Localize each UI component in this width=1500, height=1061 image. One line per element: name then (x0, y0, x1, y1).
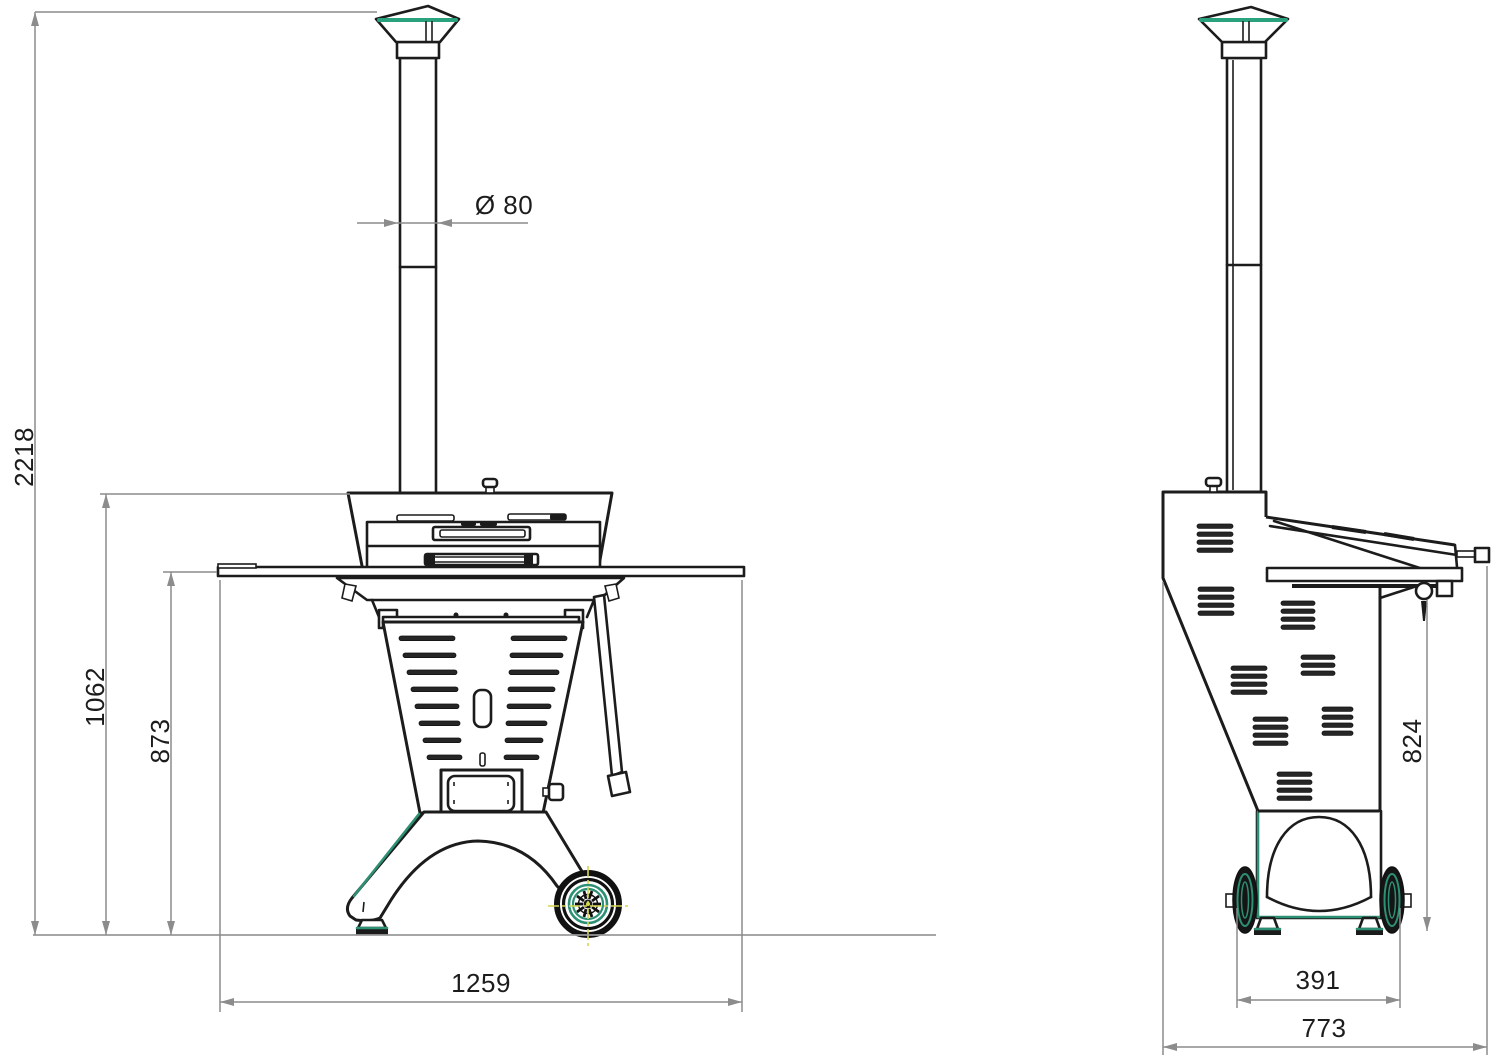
side-bracket (1437, 581, 1452, 596)
front-chimney (376, 6, 459, 503)
side-body (1163, 478, 1489, 811)
front-side-lever (594, 595, 622, 776)
side-view: 824 391 773 (1163, 7, 1489, 1055)
side-wheel-front (1380, 867, 1411, 933)
dim-total-height: 2218 (9, 12, 377, 935)
dim-worktop-height: 873 (145, 572, 217, 935)
side-flue-pipe (1227, 58, 1261, 492)
side-flue-collar (1222, 42, 1266, 58)
dim-label-total-height: 2218 (9, 427, 39, 487)
dim-label-hood-height: 1062 (80, 667, 110, 727)
side-lid-handle (1457, 548, 1489, 562)
side-damper-pull (1421, 601, 1427, 621)
side-damper-knob (1416, 583, 1432, 599)
dim-label-overall-width: 1259 (451, 968, 511, 998)
front-legs (347, 812, 628, 946)
front-chimney-cap (376, 6, 459, 42)
front-view: 2218 1062 873 (9, 6, 936, 1012)
side-chimney (1199, 7, 1288, 492)
side-foot-front (1356, 918, 1383, 935)
front-flue-collar (397, 42, 439, 58)
side-sloped-lid (1266, 517, 1457, 570)
dim-label-flue-diameter: Ø 80 (475, 190, 533, 220)
front-worktop-slab (218, 567, 744, 576)
front-body (383, 622, 583, 815)
dim-label-worktop-height: 873 (145, 719, 175, 764)
side-foot-rear (1254, 918, 1281, 935)
front-hood (348, 479, 612, 571)
dim-hood-height: 1062 (80, 494, 350, 935)
dim-flue-diameter: Ø 80 (357, 190, 533, 227)
front-ash-door (441, 770, 522, 814)
front-worktop (218, 564, 744, 576)
side-wheel-rear (1226, 867, 1257, 933)
side-base (1226, 811, 1411, 935)
technical-drawing-canvas: 2218 1062 873 (0, 0, 1500, 1061)
front-flue-pipe (400, 58, 436, 493)
dim-label-wheel-track: 391 (1296, 965, 1341, 995)
dim-label-overall-depth: 773 (1302, 1013, 1347, 1043)
front-peep-slot (474, 690, 491, 727)
front-foot (356, 920, 388, 935)
front-door-latch (549, 784, 563, 800)
front-hood-knob (483, 479, 497, 487)
dim-label-handle-height: 824 (1397, 719, 1427, 764)
side-worktop-slab (1267, 568, 1462, 581)
oven-drawing: 2218 1062 873 (0, 0, 1500, 1061)
side-top-knob (1206, 478, 1221, 486)
